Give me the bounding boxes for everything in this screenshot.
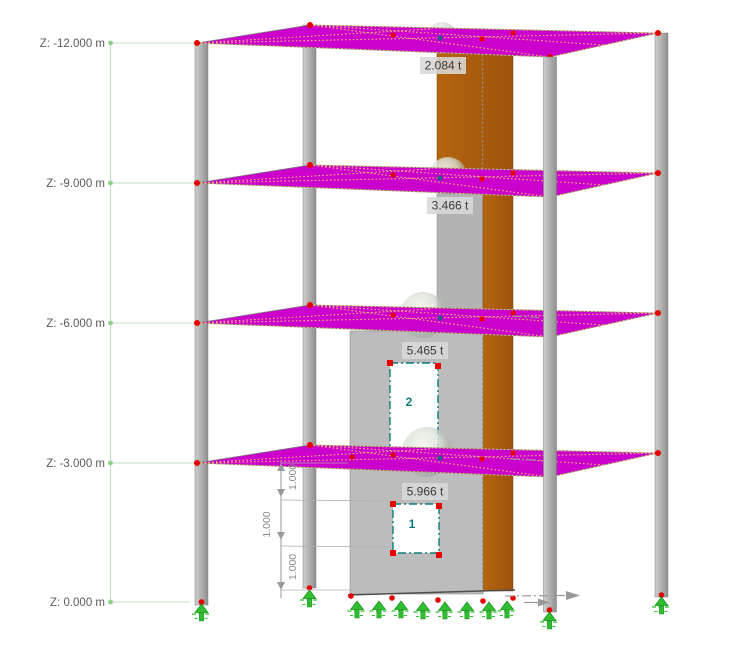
mass-center-node[interactable] — [437, 315, 442, 320]
fe-node[interactable] — [436, 552, 442, 558]
fe-node[interactable] — [390, 452, 395, 457]
dimension-value: 1.000 — [287, 554, 299, 580]
fe-node[interactable] — [390, 501, 396, 507]
level-labels: Z: -12.000 m Z: -9.000 m Z: -6.000 m Z: … — [40, 38, 105, 609]
fe-node[interactable] — [510, 170, 515, 175]
fe-node[interactable] — [655, 170, 661, 176]
fe-node[interactable] — [307, 22, 313, 28]
mass-label-z-3[interactable]: 5.966 t — [402, 483, 448, 500]
guide-dot — [108, 461, 113, 466]
fe-node[interactable] — [387, 360, 393, 366]
fe-node[interactable] — [390, 172, 395, 177]
model-viewport[interactable]: Z: -12.000 m Z: -9.000 m Z: -6.000 m Z: … — [0, 0, 738, 669]
guide-dot — [108, 321, 113, 326]
mass-label-text: 3.466 t — [432, 199, 469, 213]
opening-1-number: 1 — [409, 517, 416, 531]
scene-canvas[interactable]: Z: -12.000 m Z: -9.000 m Z: -6.000 m Z: … — [0, 0, 738, 669]
guide-dot — [108, 600, 113, 605]
fe-node[interactable] — [390, 32, 395, 37]
fe-node[interactable] — [655, 30, 661, 36]
fe-node[interactable] — [479, 316, 484, 321]
axis-arrow-icon — [566, 591, 580, 600]
level-guides — [108, 41, 196, 605]
mass-center-node[interactable] — [437, 35, 442, 40]
floor-slab-z-9[interactable] — [194, 162, 661, 200]
fe-node[interactable] — [307, 302, 313, 308]
dimension-tick-icon — [277, 489, 285, 497]
mass-label-text: 2.084 t — [425, 59, 462, 73]
nodal-support-icon[interactable] — [300, 590, 319, 607]
level-label-z-0: Z: 0.000 m — [50, 597, 105, 609]
dimension-value: 1.000 — [261, 511, 273, 537]
nodal-support-icon[interactable] — [348, 601, 367, 618]
fe-node[interactable] — [480, 598, 486, 604]
fe-node[interactable] — [510, 30, 515, 35]
nodal-support-icon[interactable] — [192, 604, 211, 621]
wall-side-face-strip[interactable] — [483, 180, 513, 591]
level-label-z-3: Z: -3.000 m — [46, 458, 105, 470]
fe-node[interactable] — [349, 454, 354, 459]
fe-node[interactable] — [194, 320, 200, 326]
fe-node[interactable] — [436, 503, 442, 509]
mass-label-z-12[interactable]: 2.084 t — [420, 57, 466, 74]
mass-label-text: 5.465 t — [407, 344, 444, 358]
fe-node[interactable] — [194, 40, 200, 46]
nodal-support-icon[interactable] — [458, 602, 477, 619]
fe-node[interactable] — [655, 450, 661, 456]
nodal-support-icon[interactable] — [540, 612, 559, 629]
nodal-support-icon[interactable] — [652, 597, 671, 614]
fe-node[interactable] — [479, 456, 484, 461]
mass-label-z-9[interactable]: 3.466 t — [427, 197, 473, 214]
fe-node[interactable] — [307, 162, 313, 168]
level-label-z-12: Z: -12.000 m — [40, 38, 105, 50]
guide-dot — [108, 181, 113, 186]
fe-node[interactable] — [348, 593, 354, 599]
mass-center-node[interactable] — [437, 175, 442, 180]
fe-node[interactable] — [390, 312, 395, 317]
nodal-support-icon[interactable] — [436, 602, 455, 619]
opening-1[interactable]: 1 — [390, 501, 442, 558]
nodal-support-icon[interactable] — [498, 601, 517, 618]
opening-1-boundary[interactable] — [393, 504, 439, 553]
dimension-tick-icon — [277, 532, 285, 540]
mass-label-text: 5.966 t — [407, 485, 444, 499]
axis-arrows — [505, 591, 580, 607]
fe-node[interactable] — [510, 450, 515, 455]
fe-node[interactable] — [435, 597, 441, 603]
fe-node[interactable] — [479, 176, 484, 181]
fe-node[interactable] — [435, 363, 441, 369]
fe-node[interactable] — [510, 310, 515, 315]
guide-dot — [108, 41, 113, 46]
nodal-support-icon[interactable] — [392, 601, 411, 618]
floor-slab-z-12[interactable] — [194, 22, 661, 60]
columns-front[interactable] — [544, 57, 557, 612]
fe-node[interactable] — [194, 460, 200, 466]
mass-label-z-6[interactable]: 5.465 t — [402, 342, 448, 359]
dimension-value: 1.000 — [287, 464, 299, 490]
nodal-support-icon[interactable] — [370, 601, 389, 618]
nodal-support-icon[interactable] — [480, 602, 499, 619]
fe-node[interactable] — [479, 36, 484, 41]
level-label-z-9: Z: -9.000 m — [46, 178, 105, 190]
level-label-z-6: Z: -6.000 m — [46, 318, 105, 330]
fe-node[interactable] — [307, 442, 313, 448]
mass-center-node[interactable] — [437, 455, 442, 460]
fe-node[interactable] — [655, 310, 661, 316]
dimension-tick-icon — [277, 582, 285, 590]
fe-node[interactable] — [389, 595, 395, 601]
base-supports[interactable] — [348, 593, 517, 619]
nodal-support-icon[interactable] — [414, 602, 433, 619]
opening-2-number: 2 — [406, 395, 413, 409]
fe-node[interactable] — [194, 180, 200, 186]
column-front-right[interactable] — [544, 57, 557, 612]
fe-node[interactable] — [390, 550, 396, 556]
